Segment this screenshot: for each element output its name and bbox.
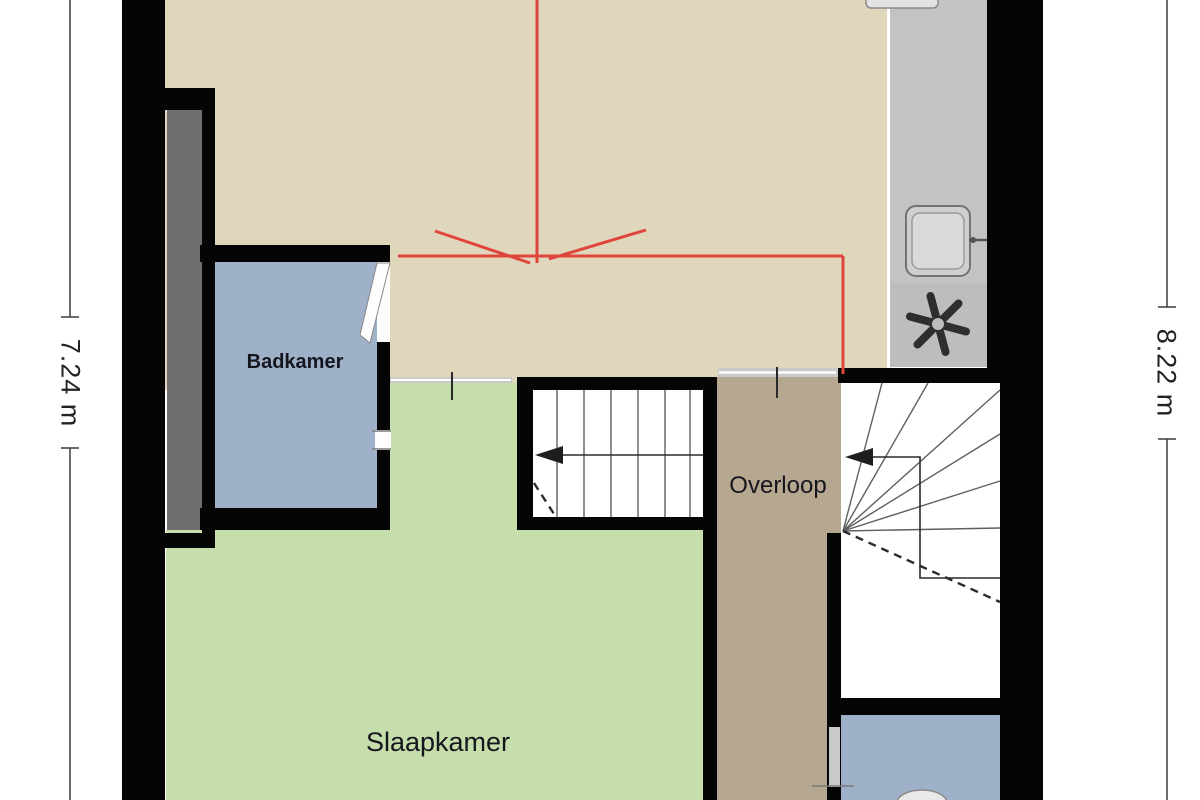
extractor-fan-icon — [910, 296, 966, 352]
roof-lines — [398, 0, 843, 374]
door-openings — [360, 263, 854, 786]
badkamer-door-leaf — [360, 263, 390, 343]
dimension-line-right — [1158, 0, 1176, 800]
stairs-right — [843, 383, 1000, 602]
toilet-icon — [897, 790, 947, 800]
floorplan-canvas: Badkamer Slaapkamer Overloop 7.24 m 8.22… — [0, 0, 1200, 800]
linework-overlay — [0, 0, 1200, 800]
dimension-line-left — [61, 0, 79, 800]
stair-direction-arrow-right — [845, 448, 873, 466]
kitchen-cutoff-label — [866, 0, 938, 8]
stair-direction-arrow-middle — [535, 446, 563, 464]
stairs-middle — [534, 390, 703, 517]
sink-icon — [906, 206, 987, 276]
